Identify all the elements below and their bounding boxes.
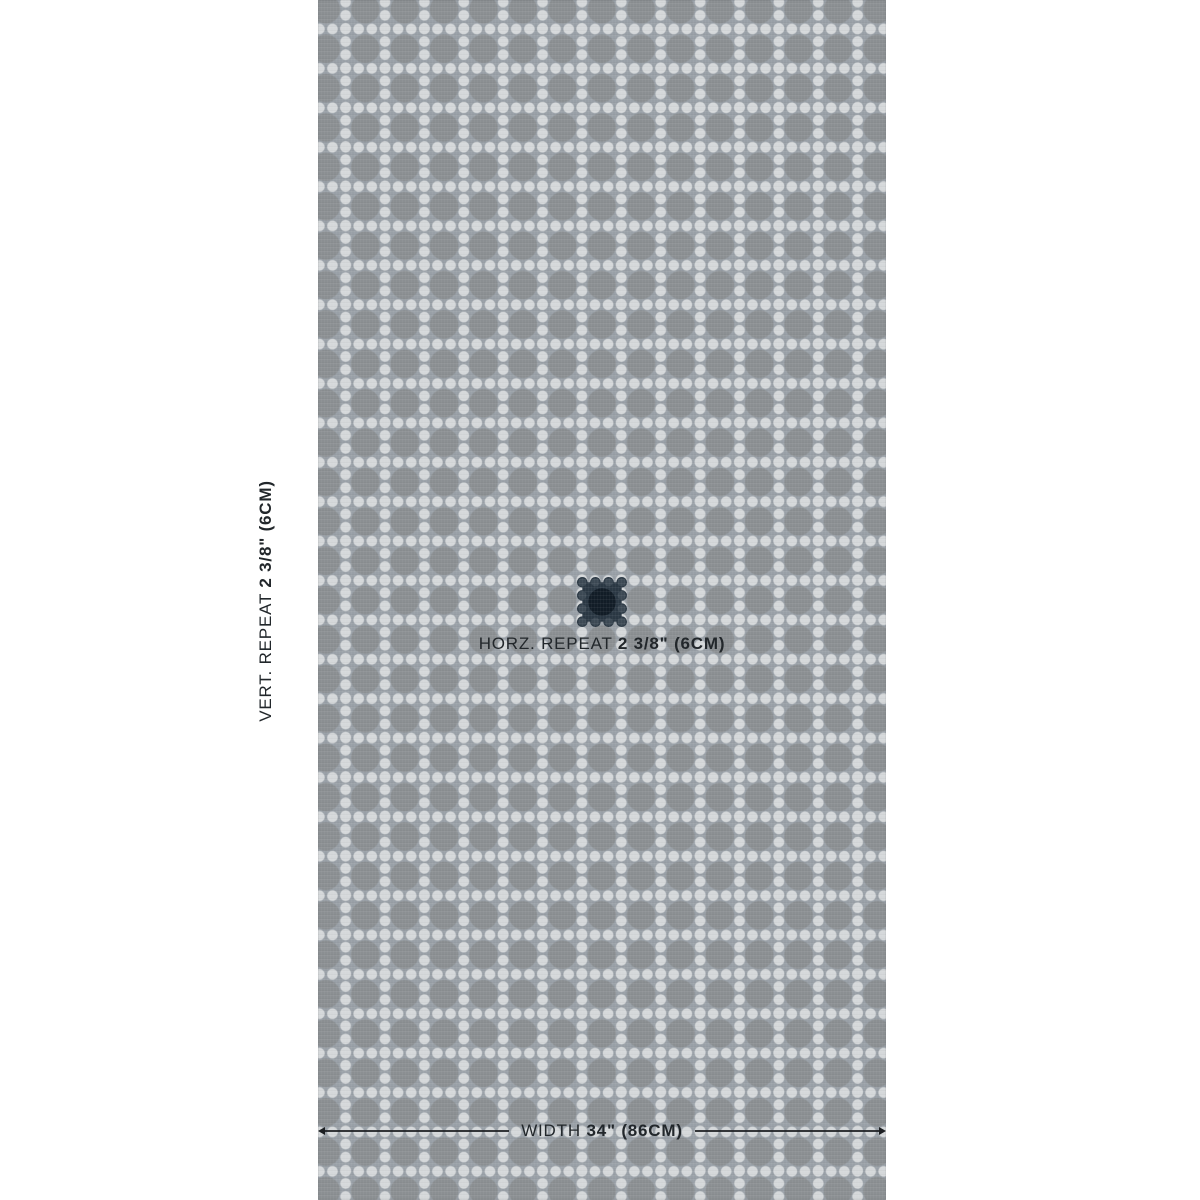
vertical-repeat-label: VERT. REPEAT 2 3/8" (6CM)	[256, 480, 276, 722]
measure-line-left	[325, 1130, 509, 1132]
fabric-measurement-diagram: VERT. REPEAT 2 3/8" (6CM) HORZ. REPEA	[0, 0, 1200, 1200]
width-measurement: WIDTH 34" (86CM)	[318, 1121, 886, 1141]
horizontal-repeat-label: HORZ. REPEAT 2 3/8" (6CM)	[318, 634, 886, 654]
width-value: 34" (86CM)	[586, 1121, 682, 1140]
width-prefix: WIDTH	[521, 1121, 581, 1140]
width-label: WIDTH 34" (86CM)	[509, 1121, 695, 1141]
vertical-repeat-value: 2 3/8" (6CM)	[256, 480, 275, 587]
repeat-unit-marker	[576, 576, 628, 628]
measure-line-right	[695, 1130, 879, 1132]
fabric-swatch: HORZ. REPEAT 2 3/8" (6CM) WIDTH 34" (86C…	[318, 0, 886, 1200]
horizontal-repeat-value: 2 3/8" (6CM)	[618, 634, 725, 653]
arrow-right-icon	[879, 1127, 886, 1135]
arrow-left-icon	[318, 1127, 325, 1135]
repeat-square-center-circle	[588, 588, 616, 616]
horizontal-repeat-prefix: HORZ. REPEAT	[479, 634, 613, 653]
vertical-repeat-prefix: VERT. REPEAT	[256, 593, 275, 722]
